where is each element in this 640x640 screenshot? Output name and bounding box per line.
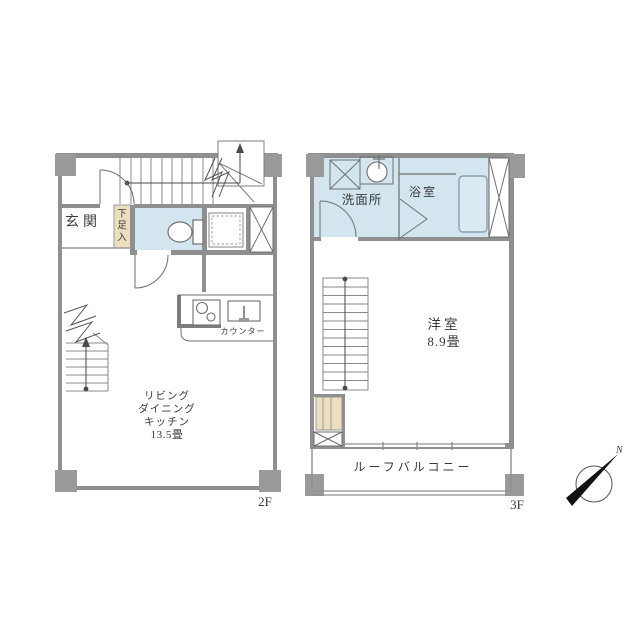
western-room-name: 洋室 — [399, 316, 489, 333]
bathtub-icon — [459, 176, 487, 232]
entrance-label: 玄関 — [58, 211, 104, 231]
3f-small-x-box — [314, 432, 342, 446]
roof-balcony-label: ルーフバルコニー — [337, 458, 489, 475]
ldk-label: リビング ダイニング キッチン 13.5畳 — [125, 390, 209, 442]
floor3-label: 3F — [500, 497, 534, 513]
ldk-label-line2: ダイニング — [125, 403, 209, 416]
floorplan-drawing — [0, 0, 640, 640]
3f-storage-fill — [316, 397, 342, 430]
toilet-icon — [168, 220, 203, 244]
2f-upper-stairs — [120, 157, 213, 204]
2f-closet-x — [250, 207, 273, 252]
entrance-door — [100, 170, 134, 204]
western-room-label: 洋室 8.9畳 — [399, 316, 489, 350]
ldk-size-label: 13.5畳 — [125, 429, 209, 442]
3f-closet-x — [489, 158, 509, 237]
floor2-label: 2F — [248, 494, 282, 510]
compass-icon — [566, 454, 618, 506]
balcony-window — [345, 442, 505, 450]
2f-lower-stairs-break — [64, 305, 100, 342]
compass-north-label: N — [616, 445, 623, 456]
2f-storage-box — [209, 213, 243, 247]
counter-label: カウンター — [216, 326, 270, 337]
floorplan-image: 玄関 下足入 カウンター リビング ダイニング キッチン 13.5畳 2F 洗面… — [0, 0, 640, 640]
shoe-storage-label: 下足入 — [113, 208, 127, 254]
ldk-label-line1: リビング — [125, 390, 209, 403]
stove-icon — [193, 300, 220, 325]
washroom-label: 洗面所 — [328, 189, 396, 208]
toilet-door — [135, 255, 168, 288]
bathroom-label: 浴室 — [401, 183, 445, 200]
ldk-label-line3: キッチン — [125, 416, 209, 429]
kitchen-sink-icon — [228, 301, 260, 322]
western-room-size: 8.9畳 — [399, 333, 489, 350]
